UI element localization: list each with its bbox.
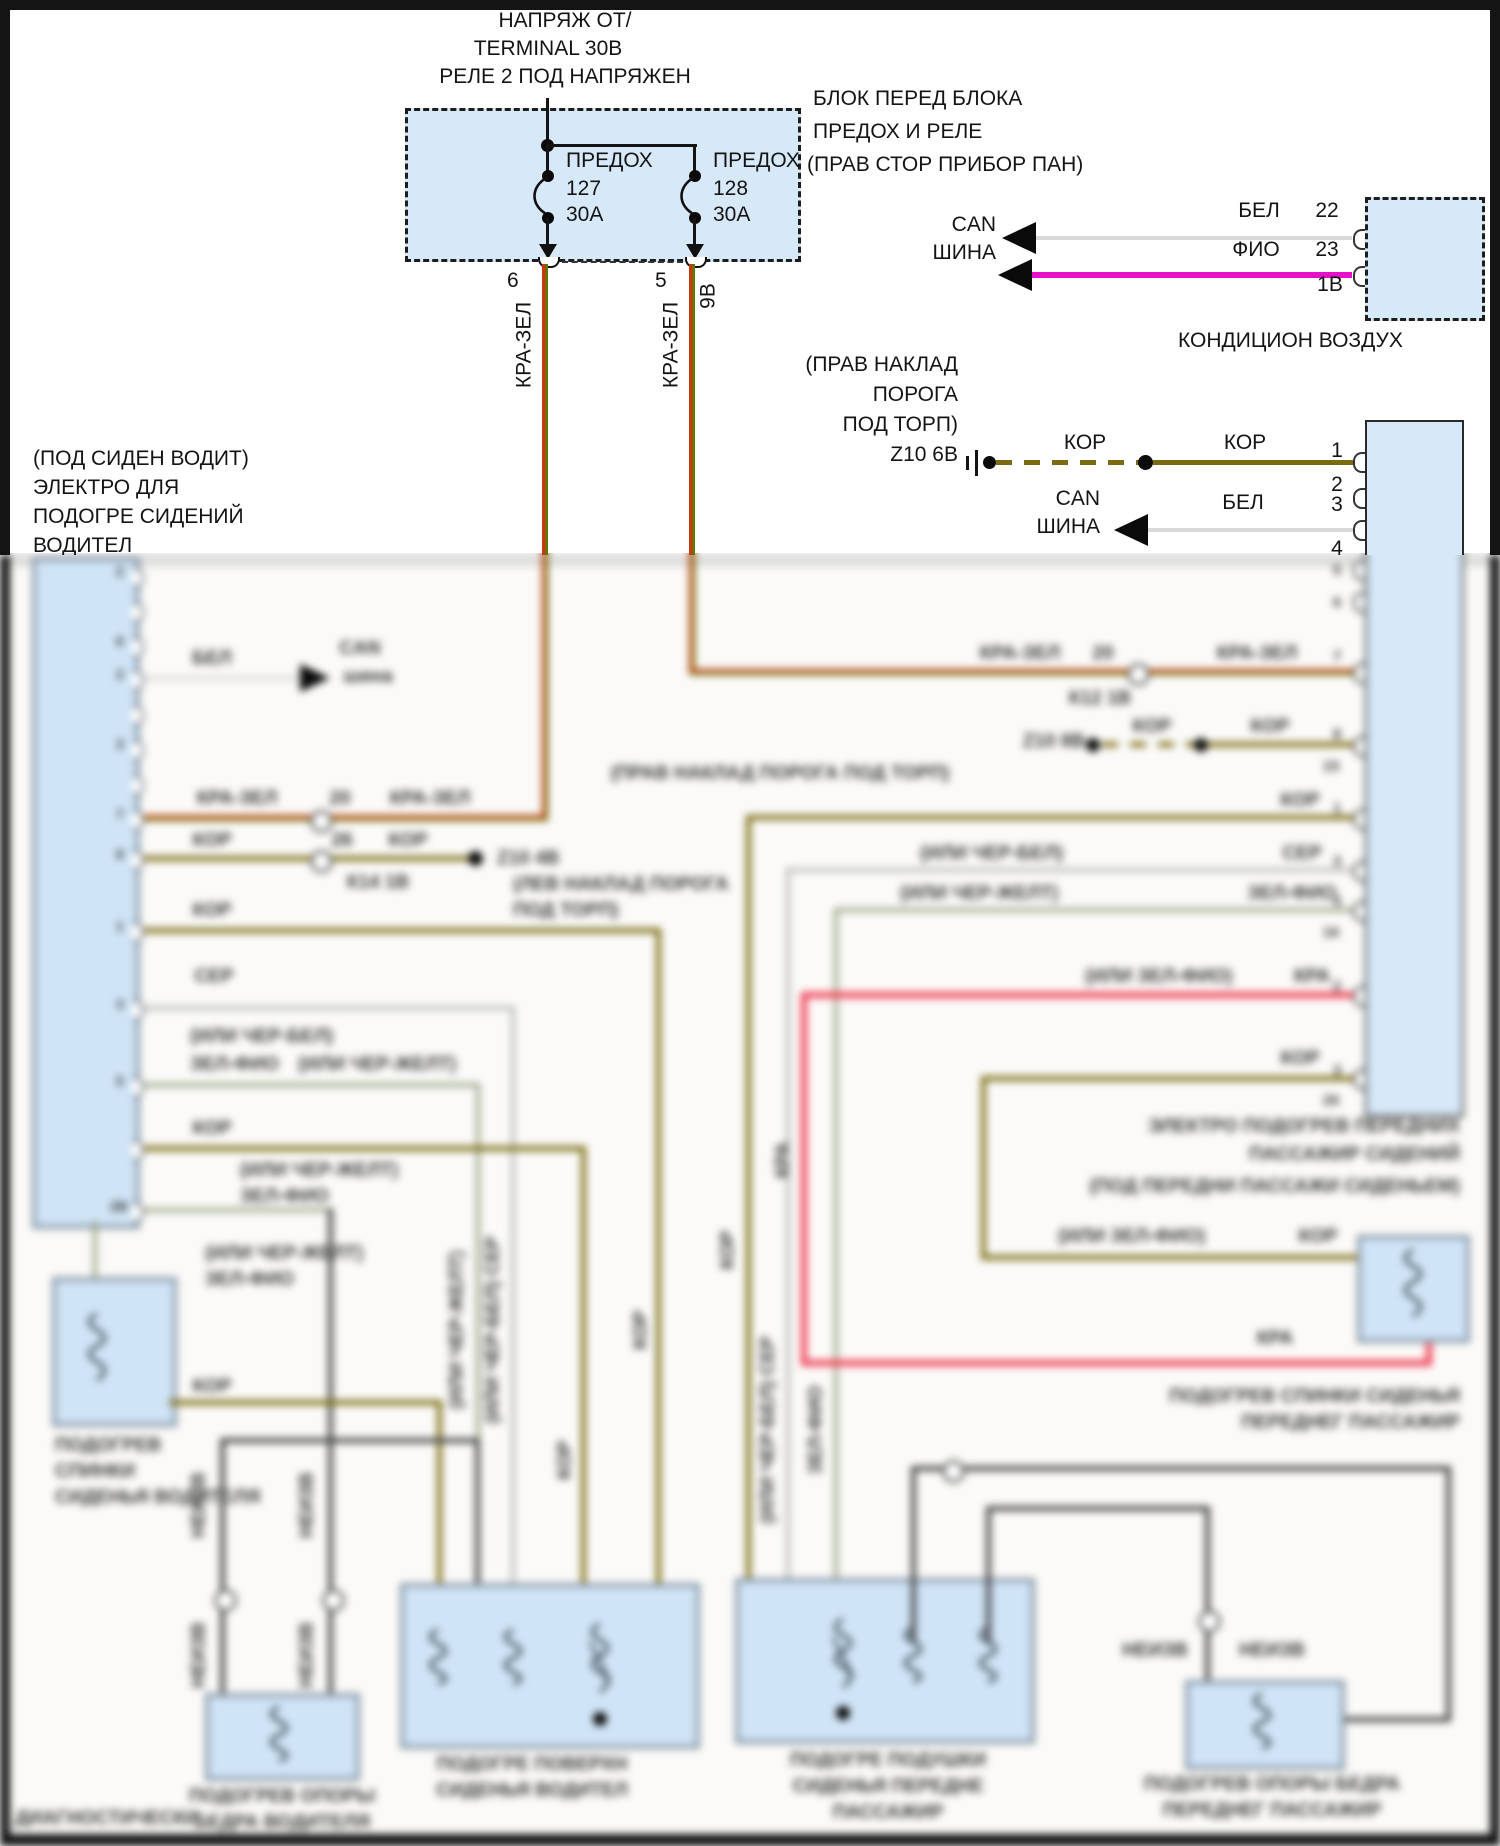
fuse2-lead-bottom: [693, 218, 696, 246]
rm-pin-num: 16: [1323, 924, 1340, 942]
ac-pin-1b: 1В: [1317, 272, 1343, 297]
wire-zel-fio-rm-vert: [834, 908, 838, 1643]
wire-label-rot: НЕИЗВ: [297, 1472, 320, 1538]
rm-pin-num: 4: [1333, 893, 1341, 911]
backrest-driver-label2: СПИНКИ: [55, 1461, 135, 1484]
rm-pin-bump: [1353, 1069, 1365, 1090]
rm-pin-1: 1: [1331, 438, 1343, 463]
thigh-driver-label2: БЕДРА ВОДИТЕЛЯ: [194, 1812, 370, 1835]
fuse1-amps: 30А: [566, 202, 603, 227]
ground-label-z10-8b: Z10 8В: [1023, 731, 1085, 754]
inline-connector: [322, 1589, 345, 1612]
wire-label: КРА-ЗЕЛ: [1217, 643, 1298, 666]
border-top: [0, 0, 1500, 10]
rm-pin-bump: [1353, 986, 1365, 1007]
wire-zel-fio-vert: [476, 1083, 480, 1440]
branch-wire: [546, 144, 697, 147]
inline-connector: [214, 1589, 237, 1612]
wire-label: КОР: [388, 830, 427, 853]
lm-pin-num: 6: [116, 633, 124, 650]
rm-pin-bump: [1353, 520, 1365, 541]
wire-label-rot: НЕИЗВ: [189, 1622, 212, 1688]
border-right: [1490, 0, 1500, 555]
wire-alt-label: (ИЛИ ЧЕР-ЖЕЛТ): [205, 1243, 363, 1266]
driver-module-label-line4: ВОДИТЕЛ: [33, 533, 132, 558]
wire-alt-label: (ИЛИ ЧЕР-БЕЛ): [190, 1026, 333, 1049]
ac-connector-box: [1365, 197, 1485, 321]
wire-label: КОР: [1280, 1048, 1319, 1071]
inline-connector: [1127, 663, 1150, 686]
backrest-pass-label2: ПЕРЕДНЕГ ПАССАЖИР: [1241, 1412, 1460, 1435]
wire-kra-vert: [801, 992, 807, 1365]
wire-label-rot: (ИЛИ ЧЕР-БЕЛ) СЕР: [758, 1336, 781, 1524]
wire-kor-dashed: [996, 460, 1140, 465]
wire-kra-zel-rm: [689, 669, 1353, 675]
wire-label: КРА-ЗЕЛ: [390, 788, 471, 811]
heater-element-icon: [80, 1312, 114, 1384]
rm-pin-bump: [1353, 663, 1365, 684]
ac-name: КОНДИЦИОН ВОЗДУХ: [1178, 328, 1403, 353]
wire-bel-lm: [144, 676, 300, 680]
wire-label-rot: (ИЛИ ЧЕР-ЖЕЛТ): [447, 1251, 470, 1409]
wire-label: КОР: [192, 830, 231, 853]
inline-connector: [310, 810, 333, 833]
left-module-box: [32, 557, 140, 1229]
wire-label: КРА: [1294, 966, 1330, 989]
wire-label-rot: КОР: [555, 1440, 578, 1479]
lm-pin-num: 3: [116, 996, 124, 1013]
wire-label: ЗЕЛ-ФИО: [240, 1186, 329, 1209]
wire-label-bel: БЕЛ: [1238, 198, 1280, 223]
wire-dark-a-bottom: [1345, 1717, 1451, 1722]
rm-pin-num: 8: [1333, 726, 1341, 744]
wire-label: ЗЕЛ-ФИО: [1248, 883, 1337, 906]
wire-dark-vert: [328, 1208, 333, 1697]
inline-connector: [310, 850, 333, 873]
wire-ser-vert: [511, 1006, 515, 1643]
sill-left-label-line1: (ЛЕВ НАКЛАД ПОРОГА: [513, 874, 729, 897]
wire-alt-label: (ИЛИ ЧЕР-ЖЕЛТ): [900, 883, 1058, 906]
lm-pin-num: 5: [116, 1073, 124, 1090]
can-label: CAN: [952, 212, 996, 237]
wire-ser-rm-vert: [786, 868, 790, 1643]
wire-alt-label: (ИЛИ ЧЕР-ЖЕЛТ): [298, 1054, 456, 1077]
thigh-driver-label1: ПОДОГРЕВ ОПОРЫ: [189, 1786, 375, 1809]
can-arrow-icon: [1002, 222, 1036, 254]
wire-label: КОР: [1132, 716, 1171, 739]
pin-label-6: 6: [507, 268, 519, 293]
wire-zel-fio: [144, 1083, 480, 1087]
wire-ser-rm: [786, 868, 1353, 872]
sill-label-line1: (ПРАВ НАКЛАД: [805, 352, 958, 377]
rm-pin-num: 15: [1323, 758, 1340, 776]
wire-label-kra-zel-right: КРА-ЗЕЛ: [658, 302, 683, 388]
wire-label: КРА-ЗЕЛ: [980, 643, 1061, 666]
surface-driver-label1: ПОДОГРЕ ПОВЕРХН: [436, 1754, 627, 1777]
junction-dot: [836, 1706, 850, 1720]
junction-dot: [593, 1712, 607, 1726]
backrest-pass-label1: ПОДОГРЕВ СПИНКИ СИДЕНЬЯ: [1169, 1386, 1460, 1409]
thigh-pass-label1: ПОДОГРЕВ ОПОРЫ БЕДРА: [1144, 1774, 1400, 1797]
wire-zel-fio-rm: [834, 908, 1353, 912]
wire-label-rot: КОР: [631, 1310, 654, 1349]
sill-location-label: (ПРАВ НАКЛАД ПОРОГА ПОД ТОРП): [610, 763, 949, 786]
lm-pin-num: 8: [116, 846, 124, 863]
border-left: [0, 0, 10, 555]
wire-bel-ac: [1036, 236, 1352, 240]
pin-label: 26: [331, 830, 352, 853]
feed-label-line3: РЕЛЕ 2 ПОД НАПРЯЖЕН: [439, 64, 690, 89]
fuse2-name: ПРЕДОХ: [713, 148, 800, 173]
ac-pin-bump: [1353, 229, 1365, 250]
rm-pin-num: 7: [1333, 648, 1341, 666]
wire-label: КОР: [1298, 1226, 1337, 1249]
wire-label-unknown: НЕИЗВ: [1239, 1640, 1305, 1663]
wire-label-kor: КОР: [1224, 430, 1266, 455]
fuse-box-label-line3: (ПРАВ СТОР ПРИБОР ПАН): [807, 152, 1083, 177]
can-arrow-icon: [300, 664, 330, 692]
rm-pin-num: 3: [1333, 853, 1341, 871]
wire-kor-backrest: [169, 1400, 442, 1405]
rm-pin-bump: [1353, 736, 1365, 757]
rm-pin-bump: [1353, 901, 1365, 922]
wire-label-kra-zel-left: КРА-ЗЕЛ: [511, 302, 536, 388]
wire-label-rot: НЕИЗВ: [189, 1472, 212, 1538]
connector-dash: [562, 261, 683, 263]
ground-label-z10-6b: Z10 6В: [890, 442, 958, 467]
driver-module-label-line3: ПОДОГРЕ СИДЕНИЙ: [33, 504, 244, 529]
rm-pin-bump: [1353, 592, 1365, 613]
can-bus-label-right: ШИНА: [1036, 514, 1100, 539]
wire-label-unknown: НЕИЗВ: [1122, 1640, 1188, 1663]
diagnostic-label: ДИАГНОСТИЧЕСКИ: [15, 1808, 199, 1831]
wire-kor-rm-vert: [746, 815, 751, 1643]
thermal-switch-icon: [826, 1617, 860, 1697]
heater-element-icon: [1245, 1692, 1279, 1750]
feed-label-line2: TERMINAL 30В: [474, 36, 623, 61]
wire-label-rot: КОР: [718, 1230, 741, 1269]
wire-label-rot: КРА: [773, 1142, 796, 1178]
wire-dark-a-right: [1446, 1466, 1451, 1722]
thermal-switch-icon: [583, 1622, 617, 1702]
ground-dot: [468, 851, 483, 866]
wire-kor2: [144, 1146, 585, 1151]
can-label: CAN: [339, 638, 380, 661]
fuse-box-label-line2: ПРЕДОХ И РЕЛЕ: [813, 119, 982, 144]
rm-pin-num: 1: [1333, 800, 1341, 818]
fuse1-name: ПРЕДОХ: [566, 148, 653, 173]
wire-bel-right: [1148, 528, 1353, 532]
rm-pin-bump: [1353, 452, 1365, 473]
driver-module-label-line1: (ПОД СИДЕН ВОДИТ): [33, 446, 249, 471]
can-label-right: CAN: [1056, 486, 1100, 511]
wire-dark-b-left: [986, 1506, 991, 1643]
pin-label: 20: [1092, 643, 1113, 666]
wire-kor3-bottom: [981, 1255, 1359, 1260]
rm-pin-bump: [1353, 861, 1365, 882]
border-left: [0, 555, 10, 1846]
wire-kor-vert: [656, 928, 661, 1643]
ground-icon: [975, 450, 978, 476]
rm-pin-num: 5: [1333, 562, 1341, 580]
wire-label: КРА-ЗЕЛ: [197, 788, 278, 811]
pin-label: 20: [329, 788, 350, 811]
wire-alt-label: (ИЛИ ЧЕР-ЖЕЛТ): [240, 1160, 398, 1183]
wire-dark-b-top: [986, 1506, 1210, 1511]
wire-label: КОР: [192, 900, 231, 923]
ground-icon: [966, 456, 969, 470]
surface-driver-label2: СИДЕНЬЯ ВОДИТЕЛ: [436, 1780, 628, 1803]
heater-element-icon: [262, 1705, 296, 1763]
junction-dot: [1194, 738, 1208, 752]
wire-label: ЗЕЛ-ФИО: [190, 1054, 279, 1077]
wire-label: СЕР: [1282, 843, 1321, 866]
wire-label: КОР: [192, 1118, 231, 1141]
rm-title-line3: (ПОД ПЕРЕДНИ ПАССАЖИ СИДЕНЬЕМ): [1089, 1176, 1460, 1199]
rm-pin-num: 6: [1333, 594, 1341, 612]
wire-alt-label: (ИЛИ ЧЕР-БЕЛ): [920, 843, 1063, 866]
wire-dark-a-top: [911, 1466, 1451, 1471]
wire-label-kor: КОР: [1064, 430, 1106, 455]
can-arrow-icon: [998, 259, 1032, 291]
can-bus-label: ШИНА: [932, 240, 996, 265]
ground-dot: [1086, 738, 1100, 752]
rm-pin-bump: [1353, 488, 1365, 509]
wire-kra-zel-right: [689, 540, 695, 675]
rm-title-line2: ПАССАЖИР СИДЕНИЙ: [1249, 1144, 1460, 1167]
rm-pin-num: 26: [1323, 1092, 1340, 1110]
wiring-diagram-page: НАПРЯЖ ОТ/ TERMINAL 30В РЕЛЕ 2 ПОД НАПРЯ…: [0, 0, 1500, 1846]
wire-label-fio: ФИО: [1232, 237, 1279, 262]
ac-pin-22: 22: [1315, 198, 1338, 223]
rm-pin-num: 3: [1333, 1062, 1341, 1080]
wire-backrest-lead: [93, 1221, 97, 1277]
fuse2-amps: 30А: [713, 202, 750, 227]
ground-label-z10-4b: Z10 4В: [497, 848, 559, 871]
rm-pin-bump: [1353, 809, 1365, 830]
ac-pin-bump: [1353, 266, 1365, 287]
wire-kor-rm: [746, 815, 1353, 820]
wire-label: КОР: [1250, 716, 1289, 739]
wire-kra-bottom: [801, 1360, 1432, 1366]
can-arrow-icon: [1114, 514, 1148, 546]
wire-label: СЕР: [194, 966, 233, 989]
lm-pin-num: 1: [116, 918, 124, 935]
backrest-driver-box: [52, 1277, 177, 1427]
wire-label-rot: ЗЕЛ-ФИО: [806, 1386, 829, 1475]
wire-kor: [1208, 742, 1353, 747]
feed-label-line1: НАПРЯЖ ОТ/: [499, 8, 632, 33]
rm-pin-3: 3: [1331, 492, 1343, 517]
heater-element-icon: [421, 1628, 455, 1686]
lm-pin-num: 2: [116, 666, 124, 683]
heater-element-icon: [1396, 1248, 1430, 1320]
wire-label-rot: (ИЛИ ЧЕР-БЕЛ) СЕР: [483, 1236, 506, 1424]
wire-label-bel: БЕЛ: [192, 648, 232, 671]
heater-element-icon: [496, 1628, 530, 1686]
rm-pin-num: 2: [1333, 978, 1341, 996]
fuse2-number: 128: [713, 176, 748, 201]
wire-kor3-vert: [981, 1076, 986, 1260]
wire-label: КРА: [1257, 1328, 1293, 1351]
cushion-pass-label3: ПАССАЖИР: [832, 1802, 943, 1825]
ac-pin-23: 23: [1315, 237, 1338, 262]
ground-dot: [983, 456, 996, 469]
wire-label: КОР: [192, 1376, 231, 1399]
sill-left-label-line2: ПОД ТОРП): [513, 900, 619, 923]
sill-label-line3: ПОД ТОРП): [843, 412, 958, 437]
wire-kor3: [981, 1076, 1353, 1081]
lm-pin-num: 3: [116, 736, 124, 753]
thigh-pass-label2: ПЕРЕДНЕГ ПАССАЖИР: [1163, 1800, 1382, 1823]
border-right: [1490, 555, 1500, 1846]
connector-label: К14 1В: [347, 872, 409, 895]
rm-title-line1: ЭЛЕКТРО ПОДОГРЕВ ПЕРЕДНИХ: [1148, 1116, 1460, 1139]
fuse1-number: 127: [566, 176, 601, 201]
driver-module-label-line2: ЭЛЕКТРО ДЛЯ: [33, 475, 179, 500]
wire-kor-dashed: [1102, 742, 1198, 747]
wire-kra-zel-left: [542, 540, 548, 821]
wire-label: КОР: [1280, 790, 1319, 813]
wire-kra-zel-left: [542, 264, 548, 555]
sill-label-line2: ПОРОГА: [873, 382, 958, 407]
inline-connector: [942, 1460, 965, 1483]
lm-pin-num: 7: [116, 806, 124, 823]
fuse1-lead-bottom: [546, 218, 549, 246]
backrest-driver-label3: СИДЕНЬЯ ВОДИТЕЛЯ: [55, 1487, 260, 1510]
lm-pin-num: 2В: [110, 1198, 128, 1215]
wire-dark-a-left: [911, 1466, 916, 1643]
pin-label-5: 5: [655, 268, 667, 293]
rm-pin-bump: [1353, 560, 1365, 581]
wire-kor2-vert: [581, 1146, 586, 1643]
wire-kra-zel-row: [144, 815, 545, 821]
connector-label: К12 1В: [1069, 688, 1131, 711]
junction-dot: [1138, 455, 1153, 470]
wire-alt-label: (ИЛИ ЗЕЛ-ФИО): [1058, 1226, 1205, 1249]
wire-kra-top: [801, 992, 1353, 998]
cushion-pass-label1: ПОДОГРЕ ПОДУШКИ: [790, 1750, 986, 1773]
inline-connector: [1198, 1610, 1221, 1633]
wire-kor-long: [144, 928, 660, 933]
wire-kra-zel-right: [689, 264, 695, 555]
lm-pin-num: 2: [116, 563, 124, 580]
wire-kor-solid: [1153, 460, 1353, 465]
border-bottom: [0, 1834, 1500, 1846]
wire-label-bel-right: БЕЛ: [1222, 490, 1264, 515]
wire-label: ЗЕЛ-ФИО: [205, 1269, 294, 1292]
cushion-pass-label2: СИДЕНЬЯ ПЕРЕДНЕ: [793, 1776, 984, 1799]
wire-fio-ac: [1032, 272, 1352, 278]
fuse-box-label-line1: БЛОК ПЕРЕД БЛОКА: [813, 86, 1022, 111]
wire-ser: [144, 1006, 515, 1010]
wire-dark-top: [220, 1438, 480, 1443]
wire-alt-label: (ИЛИ ЗЕЛ-ФИО): [1085, 966, 1232, 989]
can-bus-label: шина: [343, 666, 393, 689]
wire-dark-b-right: [1205, 1506, 1210, 1680]
blur-band: [10, 553, 1490, 567]
wire-label-rot: НЕИЗВ: [297, 1622, 320, 1688]
backrest-driver-label1: ПОДОГРЕВ: [55, 1435, 161, 1458]
wire-dark-vert-a: [220, 1438, 225, 1697]
pin-label-9b: 9В: [695, 283, 720, 309]
